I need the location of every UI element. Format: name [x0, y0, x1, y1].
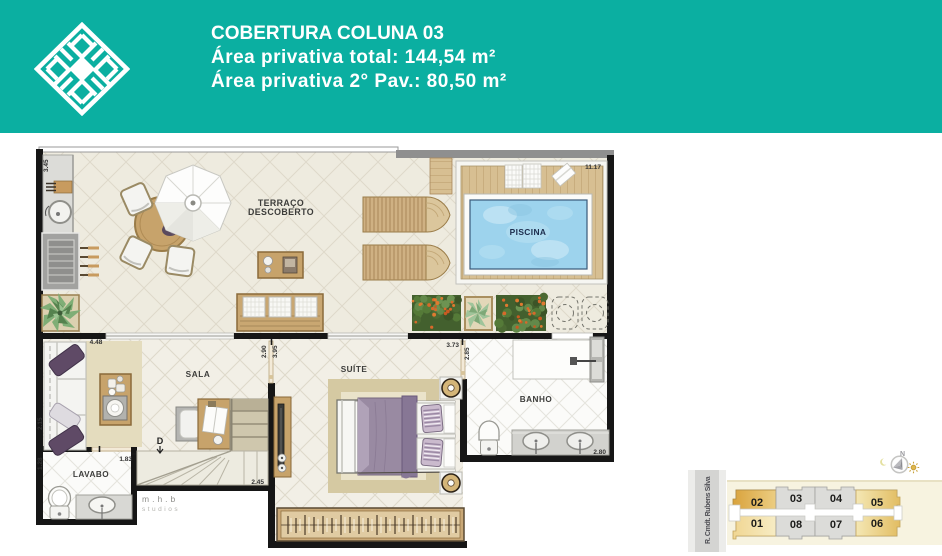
svg-text:2.45: 2.45: [251, 479, 264, 486]
svg-text:3.45: 3.45: [43, 159, 50, 172]
svg-text:11.17: 11.17: [585, 164, 601, 171]
svg-text:2.85: 2.85: [464, 347, 471, 360]
svg-text:R. Cmdt. Rubens Silva: R. Cmdt. Rubens Silva: [705, 476, 712, 544]
svg-text:3.95: 3.95: [272, 345, 279, 358]
svg-text:05: 05: [871, 497, 883, 509]
svg-text:03: 03: [790, 493, 802, 505]
svg-text:2.90: 2.90: [261, 345, 268, 358]
svg-text:studios: studios: [142, 506, 180, 513]
svg-text:02: 02: [751, 497, 763, 509]
svg-text:N: N: [900, 451, 905, 458]
svg-text:m.h.b: m.h.b: [142, 494, 178, 504]
svg-text:DESCOBERTO: DESCOBERTO: [248, 207, 314, 217]
svg-text:SUÍTE: SUÍTE: [341, 364, 368, 374]
svg-text:04: 04: [830, 493, 843, 505]
svg-text:2.15: 2.15: [37, 417, 44, 430]
svg-text:1.83: 1.83: [119, 456, 132, 463]
svg-text:D: D: [157, 436, 164, 446]
svg-text:06: 06: [871, 518, 883, 530]
svg-text:01: 01: [751, 518, 763, 530]
svg-text:LAVABO: LAVABO: [73, 470, 109, 479]
svg-text:1.28: 1.28: [37, 457, 44, 470]
svg-text:08: 08: [790, 519, 802, 531]
svg-text:4.48: 4.48: [90, 339, 103, 346]
svg-text:07: 07: [830, 519, 842, 531]
svg-text:2.80: 2.80: [593, 449, 606, 456]
svg-text:BANHO: BANHO: [520, 395, 553, 404]
svg-text:PISCINA: PISCINA: [510, 227, 547, 237]
svg-text:SALA: SALA: [186, 370, 211, 379]
svg-text:3.73: 3.73: [446, 342, 459, 349]
